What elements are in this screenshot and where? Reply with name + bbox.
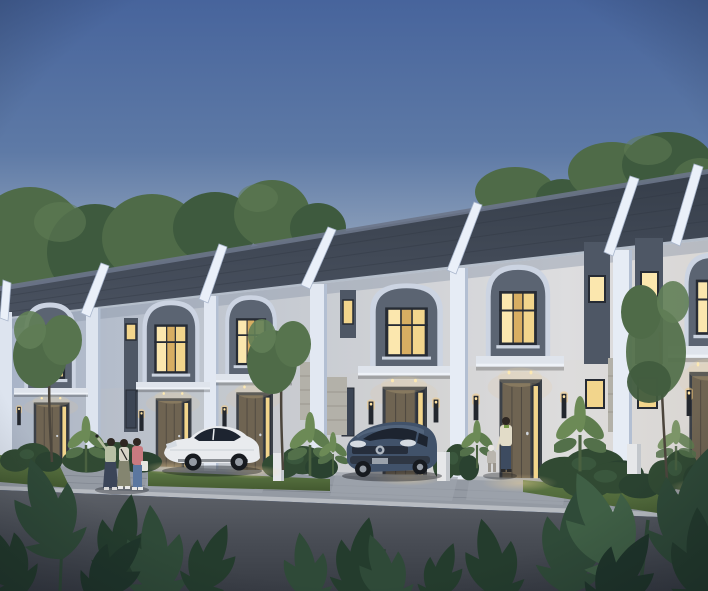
render-canvas (0, 0, 708, 591)
vignette (0, 0, 708, 591)
townhouse-dusk-render (0, 0, 708, 591)
